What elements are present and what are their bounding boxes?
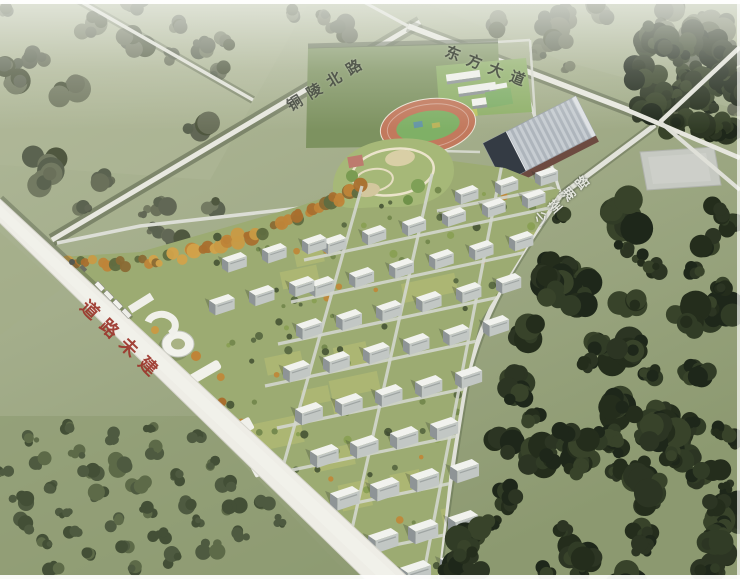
construction-pad (640, 147, 721, 190)
aerial-render: 铜陵北路 东方大道 少荃湖路 道路未建 (0, 0, 740, 579)
aerial-scene (0, 0, 740, 579)
